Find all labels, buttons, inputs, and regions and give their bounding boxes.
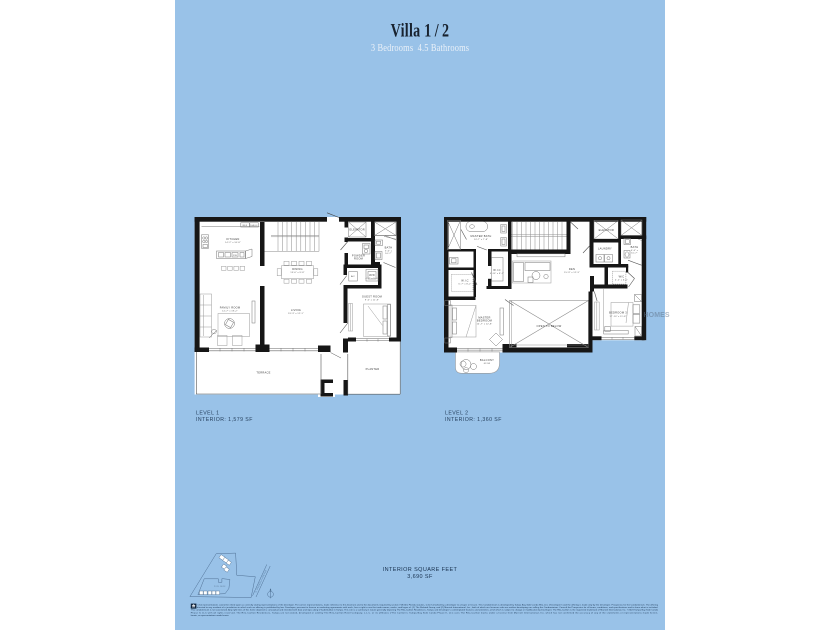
- svg-text:ELEVATOR: ELEVATOR: [599, 228, 614, 232]
- svg-text:INTERIOR SQUARE FEET: INTERIOR SQUARE FEET: [383, 567, 458, 573]
- svg-text:LEVEL 1: LEVEL 1: [196, 411, 219, 417]
- svg-text:3,690 SF: 3,690 SF: [407, 574, 433, 580]
- svg-text:LAUNDRY: LAUNDRY: [598, 247, 612, 251]
- svg-text:REF: REF: [243, 225, 248, 227]
- svg-text:OPEN TO BELOW: OPEN TO BELOW: [537, 324, 562, 328]
- svg-text:DEN: DEN: [569, 267, 575, 271]
- svg-text:SHELF: SHELF: [250, 225, 258, 227]
- svg-text:GUEST ROOM: GUEST ROOM: [362, 295, 382, 299]
- svg-text:BATH: BATH: [631, 245, 639, 249]
- svg-text:MASTER BATH: MASTER BATH: [470, 234, 491, 238]
- svg-text:19'-3" x 12'-1": 19'-3" x 12'-1": [288, 313, 304, 315]
- svg-text:17'-10" x 11'-8": 17'-10" x 11'-8": [610, 316, 627, 318]
- svg-text:A/C: A/C: [351, 275, 355, 278]
- svg-text:BATH: BATH: [385, 246, 393, 250]
- svg-text:POOL DECK: POOL DECK: [214, 586, 226, 588]
- svg-text:W.I.C: W.I.C: [461, 279, 469, 283]
- svg-text:DINING: DINING: [292, 267, 303, 271]
- svg-text:is not directed to any residen: is not directed to any resident of a jur…: [191, 606, 659, 609]
- svg-text:FAMILY ROOM: FAMILY ROOM: [220, 306, 241, 310]
- svg-text:14'-2" x 10'-8": 14'-2" x 10'-8": [225, 242, 241, 244]
- svg-text:4'-10" x 8'-1": 4'-10" x 8'-1": [490, 273, 504, 275]
- svg-text:ROOM: ROOM: [354, 256, 363, 260]
- svg-text:W/C: W/C: [619, 275, 625, 279]
- svg-text:3 Bedrooms 4.5 Bathrooms: 3 Bedrooms 4.5 Bathrooms: [371, 42, 470, 53]
- svg-text:W/D: W/D: [369, 273, 375, 277]
- svg-text:LIVING: LIVING: [291, 308, 301, 312]
- svg-text:HOMES: HOMES: [644, 312, 670, 319]
- svg-text:BEDROOM: BEDROOM: [477, 319, 492, 323]
- svg-text:INTERIOR: 1,360 SF: INTERIOR: 1,360 SF: [445, 417, 502, 423]
- svg-text:BEDROOM 3: BEDROOM 3: [609, 311, 627, 315]
- svg-text:LEVEL 2: LEVEL 2: [445, 411, 468, 417]
- svg-text:W.I.C: W.I.C: [493, 268, 501, 272]
- svg-text:TERRACE: TERRACE: [256, 371, 270, 375]
- svg-text:BALCONY: BALCONY: [480, 358, 494, 362]
- svg-text:14'-7" x 12'-8": 14'-7" x 12'-8": [477, 324, 493, 326]
- svg-text:13'-6" x 9'-8": 13'-6" x 9'-8": [290, 272, 304, 274]
- svg-text:herein, or representations mad: herein, or representations made herein.: [191, 614, 230, 617]
- svg-text:14'-7" x 7'-8": 14'-7" x 7'-8": [474, 239, 488, 241]
- svg-text:Phase II, LLC with all rights: Phase II, LLC with all rights reserved. …: [191, 611, 659, 614]
- svg-text:15'-9" x 12'-3": 15'-9" x 12'-3": [564, 272, 580, 274]
- svg-text:6'-7" x 8'-2": 6'-7" x 8'-2": [459, 284, 472, 286]
- svg-text:ELEVATOR: ELEVATOR: [349, 228, 364, 232]
- svg-text:KITCHEN: KITCHEN: [226, 237, 239, 241]
- svg-text:This condominium is not sancti: This condominium is not sanctioned. Any …: [191, 609, 659, 612]
- svg-text:10'-7": 10'-7": [385, 253, 392, 255]
- svg-text:9'-6" x 11'-8": 9'-6" x 11'-8": [365, 300, 379, 302]
- svg-text:4'-2" x 5'-0": 4'-2" x 5'-0": [366, 278, 379, 280]
- svg-text:INTERIOR: 1,579 SF: INTERIOR: 1,579 SF: [196, 417, 253, 423]
- svg-text:14'-7" x 19'-2": 14'-7" x 19'-2": [222, 311, 238, 313]
- svg-text:10'-7": 10'-7": [631, 252, 638, 254]
- svg-text:Oral representations cannot be: Oral representations cannot be relied up…: [198, 604, 659, 607]
- svg-text:Villa 1 / 2: Villa 1 / 2: [391, 19, 450, 41]
- svg-text:63 SF: 63 SF: [484, 363, 491, 365]
- svg-text:PLANTER: PLANTER: [366, 367, 380, 371]
